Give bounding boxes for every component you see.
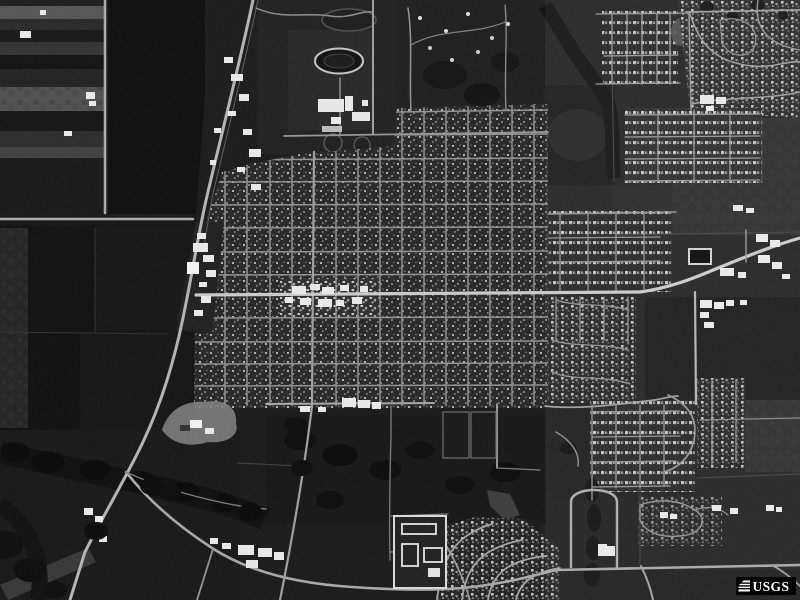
usgs-logo-text: USGS bbox=[753, 579, 790, 594]
usgs-stripes-icon bbox=[739, 581, 751, 592]
film-grain-2 bbox=[0, 0, 800, 600]
aerial-photo-viewport[interactable]: USGS bbox=[0, 0, 800, 600]
usgs-logo: USGS bbox=[736, 577, 796, 595]
aerial-photo-image: USGS bbox=[0, 0, 800, 600]
